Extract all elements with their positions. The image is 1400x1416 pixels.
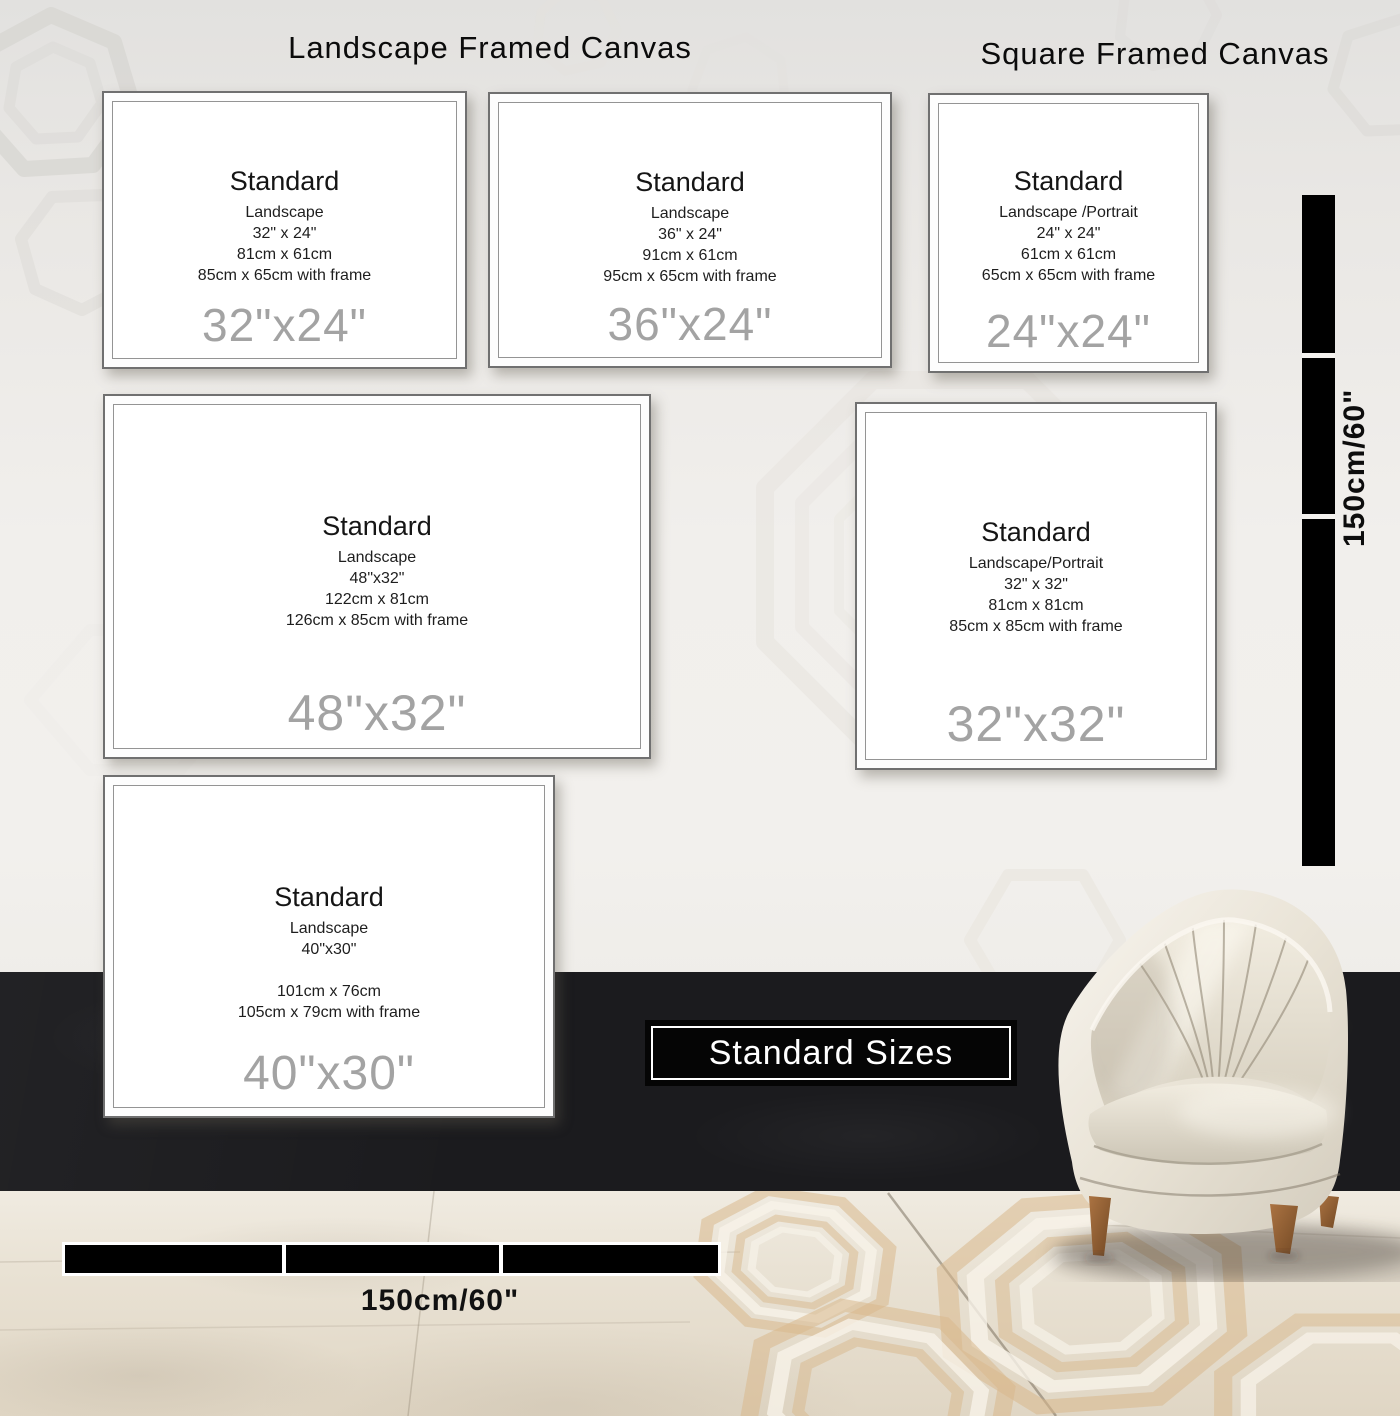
- frame-line: 61cm x 61cm: [939, 244, 1198, 265]
- frame-line: 32" x 32": [866, 574, 1206, 595]
- frame-48x32: Standard Landscape 48"x32" 122cm x 81cm …: [103, 394, 651, 759]
- frame-title: Standard: [113, 166, 456, 197]
- frame-line: 32" x 24": [113, 223, 456, 244]
- frame-line: 81cm x 81cm: [866, 595, 1206, 616]
- frame-line: 36" x 24": [499, 224, 881, 245]
- frame-line: Landscape: [114, 547, 640, 568]
- frame-line: Landscape: [499, 203, 881, 224]
- frame-line: [114, 960, 544, 981]
- frame-size-label: 32"x24": [113, 298, 456, 352]
- frame-line: 24" x 24": [939, 223, 1198, 244]
- frame-line: Landscape/Portrait: [866, 553, 1206, 574]
- heading-square-framed-canvas: Square Framed Canvas: [905, 36, 1400, 72]
- frame-size-label: 48"x32": [114, 684, 640, 742]
- standard-sizes-label: Standard Sizes: [651, 1026, 1011, 1080]
- frame-36x24-matte: Standard Landscape 36" x 24" 91cm x 61cm…: [498, 102, 882, 358]
- scale-segment-gap: [1302, 353, 1335, 358]
- frame-48x32-specs: Standard Landscape 48"x32" 122cm x 81cm …: [114, 511, 640, 631]
- armchair-illustration: [1008, 862, 1400, 1282]
- frame-24x24-specs: Standard Landscape /Portrait 24" x 24" 6…: [939, 166, 1198, 286]
- frame-line: 95cm x 65cm with frame: [499, 266, 881, 287]
- heading-landscape-framed-canvas: Landscape Framed Canvas: [180, 30, 800, 66]
- frame-line: 48"x32": [114, 568, 640, 589]
- frame-line: Landscape: [114, 918, 544, 939]
- frame-line: 65cm x 65cm with frame: [939, 265, 1198, 286]
- frame-line: 122cm x 81cm: [114, 589, 640, 610]
- frame-24x24-matte: Standard Landscape /Portrait 24" x 24" 6…: [938, 103, 1199, 363]
- frame-36x24-specs: Standard Landscape 36" x 24" 91cm x 61cm…: [499, 167, 881, 287]
- scale-segment-gap: [1302, 514, 1335, 519]
- horizontal-scale-bar: [62, 1242, 721, 1276]
- frame-line: 101cm x 76cm: [114, 981, 544, 1002]
- frame-title: Standard: [939, 166, 1198, 197]
- vertical-scale-bar: [1302, 195, 1335, 866]
- frame-line: Landscape: [113, 202, 456, 223]
- frame-line: 85cm x 85cm with frame: [866, 616, 1206, 637]
- frame-line: Landscape /Portrait: [939, 202, 1198, 223]
- frame-40x30: Standard Landscape 40"x30" 101cm x 76cm …: [103, 775, 555, 1118]
- frame-32x32: Standard Landscape/Portrait 32" x 32" 81…: [855, 402, 1217, 770]
- frame-48x32-matte: Standard Landscape 48"x32" 122cm x 81cm …: [113, 404, 641, 749]
- frame-title: Standard: [866, 517, 1206, 548]
- scale-segment-gap: [282, 1245, 286, 1273]
- frame-title: Standard: [499, 167, 881, 198]
- frame-40x30-specs: Standard Landscape 40"x30" 101cm x 76cm …: [114, 882, 544, 1023]
- horizontal-scale-label: 150cm/60": [240, 1284, 640, 1318]
- frame-32x24: Standard Landscape 32" x 24" 81cm x 61cm…: [102, 91, 467, 369]
- frame-36x24: Standard Landscape 36" x 24" 91cm x 61cm…: [488, 92, 892, 368]
- scale-segment-gap: [499, 1245, 503, 1273]
- frame-title: Standard: [114, 882, 544, 913]
- frame-line: 40"x30": [114, 939, 544, 960]
- frame-line: 91cm x 61cm: [499, 245, 881, 266]
- frame-line: 81cm x 61cm: [113, 244, 456, 265]
- frame-size-label: 40"x30": [114, 1046, 544, 1101]
- frame-line: 105cm x 79cm with frame: [114, 1002, 544, 1023]
- frame-32x32-matte: Standard Landscape/Portrait 32" x 32" 81…: [865, 412, 1207, 760]
- frame-24x24: Standard Landscape /Portrait 24" x 24" 6…: [928, 93, 1209, 373]
- frame-size-label: 36"x24": [499, 297, 881, 351]
- frame-line: 85cm x 65cm with frame: [113, 265, 456, 286]
- frame-size-label: 24"x24": [939, 304, 1198, 358]
- frame-32x24-specs: Standard Landscape 32" x 24" 81cm x 61cm…: [113, 166, 456, 286]
- vertical-scale-label: 150cm/60": [1338, 348, 1378, 588]
- frame-line: 126cm x 85cm with frame: [114, 610, 640, 631]
- frame-32x32-specs: Standard Landscape/Portrait 32" x 32" 81…: [866, 517, 1206, 637]
- canvas-size-guide: Landscape Framed Canvas Square Framed Ca…: [0, 0, 1400, 1416]
- frame-size-label: 32"x32": [866, 695, 1206, 753]
- frame-40x30-matte: Standard Landscape 40"x30" 101cm x 76cm …: [113, 785, 545, 1108]
- frame-title: Standard: [114, 511, 640, 542]
- standard-sizes-sign: Standard Sizes: [645, 1020, 1017, 1086]
- frame-32x24-matte: Standard Landscape 32" x 24" 81cm x 61cm…: [112, 101, 457, 359]
